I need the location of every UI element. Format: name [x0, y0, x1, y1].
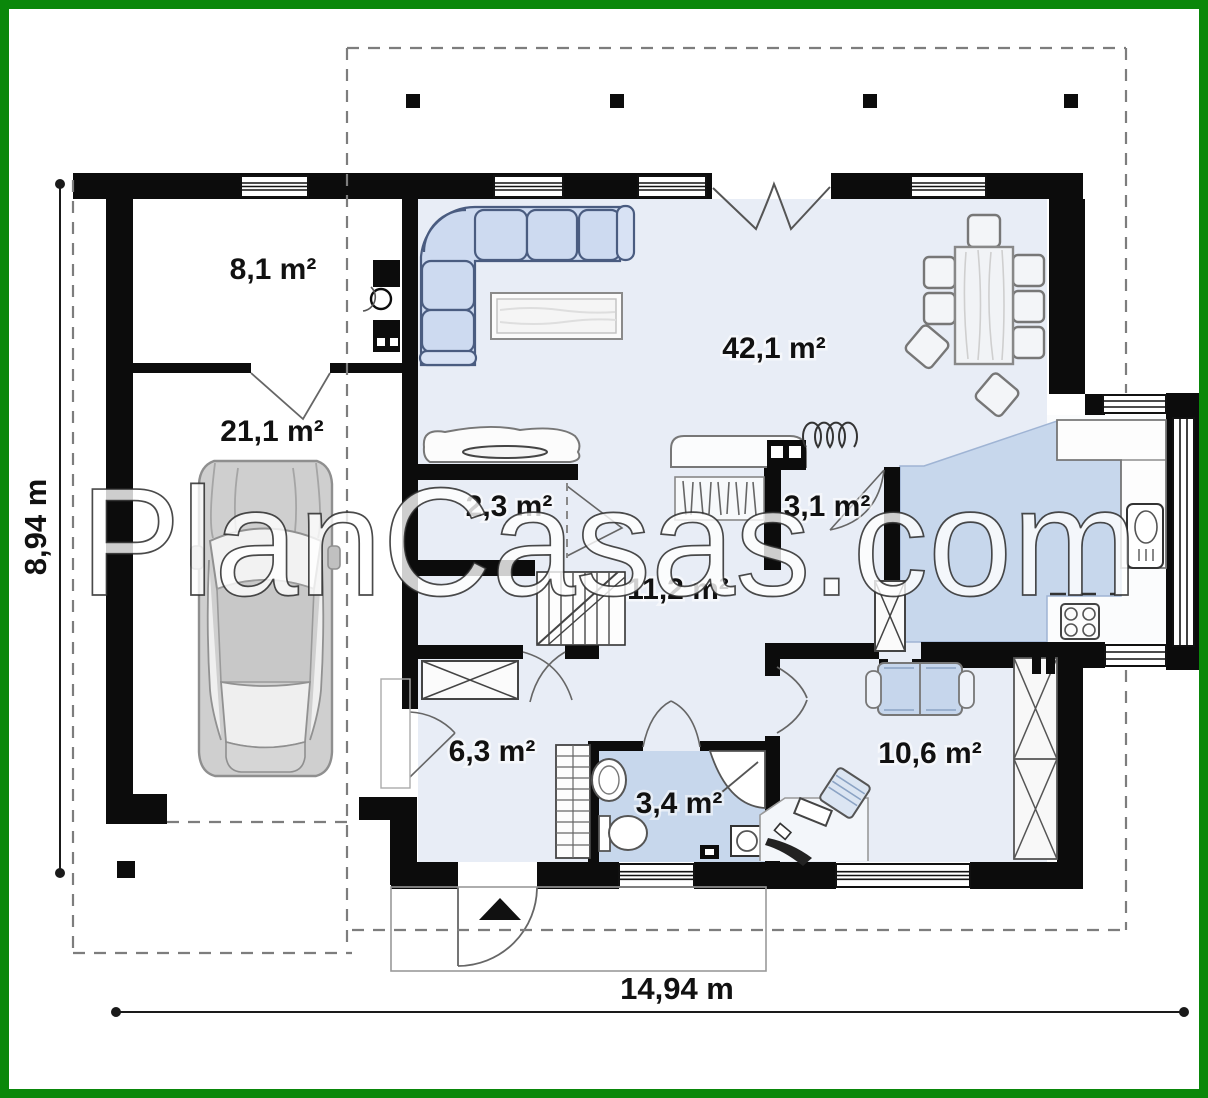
svg-text:3,4 m²: 3,4 m²	[636, 787, 723, 820]
svg-text:14,94 m: 14,94 m	[620, 971, 734, 1006]
svg-text:PlanCasas.com: PlanCasas.com	[80, 456, 1138, 628]
svg-text:42,1 m²: 42,1 m²	[722, 332, 825, 365]
svg-text:21,1 m²: 21,1 m²	[220, 415, 323, 448]
svg-text:6,3 m²: 6,3 m²	[449, 735, 536, 768]
svg-text:8,1 m²: 8,1 m²	[230, 253, 317, 286]
svg-text:8,94 m: 8,94 m	[18, 479, 53, 576]
svg-text:10,6 m²: 10,6 m²	[878, 737, 981, 770]
